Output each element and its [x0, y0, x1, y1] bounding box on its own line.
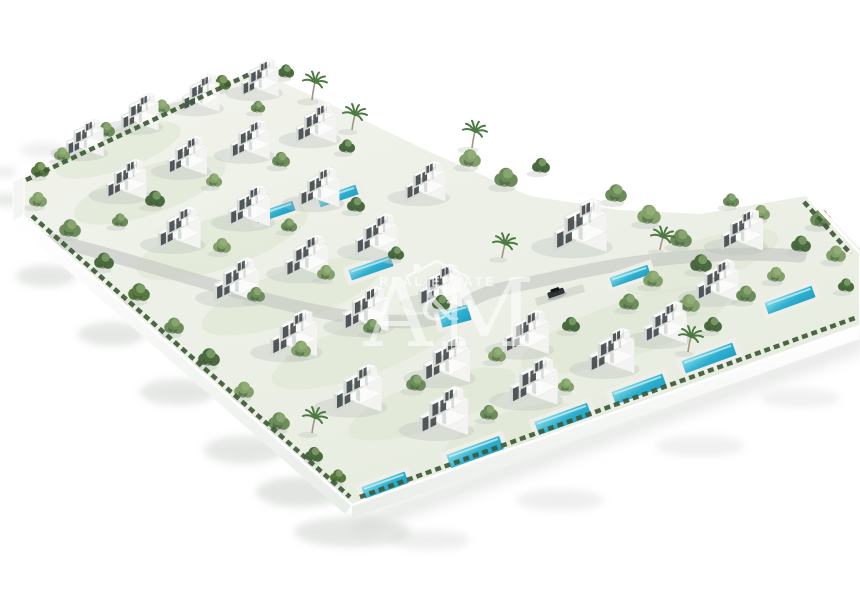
tree-highlight: [256, 101, 262, 107]
villa-window: [242, 260, 245, 269]
tree-highlight: [569, 318, 577, 326]
villa-glazing: [375, 235, 378, 246]
tree-highlight: [487, 406, 495, 414]
tree-highlight: [650, 271, 658, 279]
villa-window: [582, 205, 585, 216]
tree-highlight: [729, 194, 736, 201]
villa-glazing: [318, 188, 321, 199]
tree-highlight: [539, 159, 547, 167]
villa-window: [378, 218, 381, 227]
tree-highlight: [613, 185, 622, 194]
palm-tree: [297, 72, 327, 106]
villa-window: [89, 122, 91, 130]
villa-glazing: [356, 389, 360, 401]
tree-highlight: [241, 382, 249, 390]
tree-highlight: [206, 349, 215, 358]
tree-highlight: [743, 286, 751, 294]
tree-highlight: [503, 169, 513, 179]
villa-window: [744, 213, 747, 221]
villa-window: [251, 189, 254, 197]
villa-window: [359, 369, 362, 379]
villa-glazing: [210, 76, 211, 82]
tree-highlight: [254, 288, 262, 296]
tree-highlight: [36, 193, 44, 201]
villa-glazing: [752, 211, 753, 218]
villa-window: [238, 262, 241, 271]
palm-tree: [458, 121, 487, 154]
villa-glazing: [537, 312, 538, 319]
villa-window: [445, 391, 448, 401]
villa-glazing: [197, 138, 198, 144]
villa-window: [86, 123, 88, 131]
villa-glazing: [305, 313, 306, 320]
tree-shadow: [390, 530, 470, 550]
tree-highlight: [798, 236, 806, 244]
architectural-render: REAL ESTATE A & M: [0, 0, 860, 590]
villa-window: [127, 163, 130, 171]
tree-highlight: [279, 153, 287, 161]
villa-window: [747, 212, 750, 220]
villa-window: [264, 62, 266, 70]
villa-glazing: [442, 412, 446, 425]
tree-highlight: [276, 413, 285, 422]
villa-glazing: [305, 257, 309, 268]
villa-window: [667, 306, 670, 315]
villa-glazing: [190, 209, 191, 216]
tree-highlight: [220, 76, 228, 84]
tree-highlight: [324, 266, 332, 274]
villa-glazing: [741, 231, 744, 242]
tree-highlight: [118, 214, 125, 221]
villa-glazing: [545, 360, 546, 368]
villa-glazing: [94, 121, 95, 127]
villa-window: [320, 171, 323, 179]
villa-window: [426, 165, 429, 173]
villa-window: [192, 138, 195, 146]
villa-glazing: [623, 330, 624, 337]
villa-window: [295, 315, 298, 324]
villa-window: [188, 140, 191, 148]
tree-highlight: [774, 268, 782, 276]
villa-window: [308, 239, 311, 248]
villa-glazing: [125, 180, 128, 191]
tree-highlight: [646, 206, 656, 216]
villa-window: [670, 304, 673, 313]
tree-highlight: [104, 123, 112, 131]
tree-highlight: [564, 379, 571, 386]
villa-window: [205, 77, 207, 85]
perimeter-wall-left: [13, 176, 24, 221]
tree-highlight: [686, 295, 695, 304]
villa-window: [255, 122, 258, 130]
villa-window: [299, 313, 302, 322]
tree-highlight: [171, 318, 179, 326]
villa-window: [450, 389, 453, 399]
tree-highlight: [698, 255, 707, 264]
villa-glazing: [136, 161, 137, 167]
villa-window: [144, 96, 146, 104]
tree-shadow: [760, 388, 840, 408]
villa-window: [181, 211, 184, 220]
tree-highlight: [152, 191, 160, 199]
tree-highlight: [160, 100, 167, 107]
villa-window: [317, 107, 320, 115]
tree-highlight: [220, 239, 228, 247]
villa-window: [184, 209, 187, 218]
villa-glazing: [317, 237, 318, 244]
villa-glazing: [178, 228, 181, 239]
tree-highlight: [312, 448, 320, 456]
villa-glazing: [315, 124, 318, 135]
tree: [718, 193, 740, 210]
villa-window: [722, 262, 725, 271]
villa-window: [617, 331, 620, 340]
palm-frond: [315, 82, 322, 87]
villa-window: [613, 333, 616, 342]
tree-highlight: [212, 174, 219, 181]
palm-shadow: [297, 99, 319, 106]
tree-shadow: [656, 435, 744, 457]
tree: [599, 184, 626, 207]
tree-highlight: [345, 140, 352, 147]
palm-shadow: [648, 250, 664, 255]
villa-glazing: [249, 140, 252, 150]
tree-highlight: [711, 318, 719, 326]
palm-shadow: [298, 432, 317, 438]
villa-glazing: [728, 262, 729, 269]
villa-glazing: [260, 122, 261, 128]
villa-window: [430, 163, 433, 171]
tree-shadow: [516, 489, 604, 511]
villa-glazing: [578, 227, 582, 241]
villa-window: [381, 216, 384, 225]
site-plan-render: REAL ESTATE A & M: [0, 0, 860, 590]
tree: [527, 158, 551, 177]
villa-glazing: [149, 95, 150, 101]
villa-glazing: [186, 156, 189, 166]
villa-glazing: [235, 281, 239, 293]
tree-highlight: [354, 198, 362, 206]
villa-window: [141, 97, 143, 105]
tree-highlight: [833, 246, 841, 254]
villa-glazing: [247, 260, 248, 267]
villa-glazing: [435, 163, 436, 169]
watermark-logo: REAL ESTATE A & M: [363, 259, 535, 369]
tree-highlight: [413, 375, 421, 383]
villa-window: [251, 124, 254, 132]
palm-frond: [475, 132, 482, 137]
villa-glazing: [387, 216, 388, 223]
palm-trunk: [472, 132, 475, 148]
villa-window: [539, 360, 542, 370]
watermark-letter-m: M: [437, 259, 534, 369]
villa-glazing: [259, 187, 260, 194]
villa-glazing: [424, 182, 427, 193]
tree-highlight: [287, 219, 294, 226]
villa-glazing: [84, 139, 87, 149]
villa-glazing: [248, 207, 251, 218]
tree-highlight: [467, 150, 476, 159]
palm-shadow: [674, 351, 693, 357]
villa-window: [202, 78, 204, 86]
tree-highlight: [101, 253, 109, 261]
tree-highlight: [626, 294, 634, 302]
villa-glazing: [532, 382, 536, 394]
tree-highlight: [60, 148, 67, 155]
villa-glazing: [610, 352, 614, 364]
villa-window: [324, 169, 327, 177]
tree-highlight: [67, 220, 76, 229]
tree-highlight: [678, 230, 687, 239]
tree-shadow: [0, 167, 17, 177]
tree-highlight: [284, 65, 291, 72]
villa-glazing: [664, 323, 667, 334]
villa-window: [587, 202, 590, 213]
tree-highlight: [759, 206, 767, 214]
villa-glazing: [676, 304, 677, 311]
villa-glazing: [139, 113, 142, 123]
tree-highlight: [136, 284, 145, 293]
villa-window: [131, 161, 134, 169]
villa-glazing: [326, 105, 327, 111]
tree: [453, 149, 480, 172]
villa-glazing: [259, 79, 262, 89]
villa-window: [254, 188, 257, 196]
villa-glazing: [456, 389, 457, 397]
tree-highlight: [336, 470, 343, 477]
villa-window: [719, 264, 722, 273]
villa-window: [261, 63, 263, 71]
villa-window: [312, 237, 315, 246]
villa-glazing: [329, 169, 330, 175]
tree-highlight: [844, 279, 851, 286]
tree-highlight: [298, 341, 306, 349]
villa-window: [321, 105, 324, 113]
villa-window: [535, 362, 538, 372]
palm-shadow: [338, 129, 357, 135]
villa-glazing: [716, 281, 719, 292]
villa-glazing: [593, 202, 594, 210]
tree-highlight: [394, 247, 401, 254]
villa-glazing: [269, 61, 270, 67]
